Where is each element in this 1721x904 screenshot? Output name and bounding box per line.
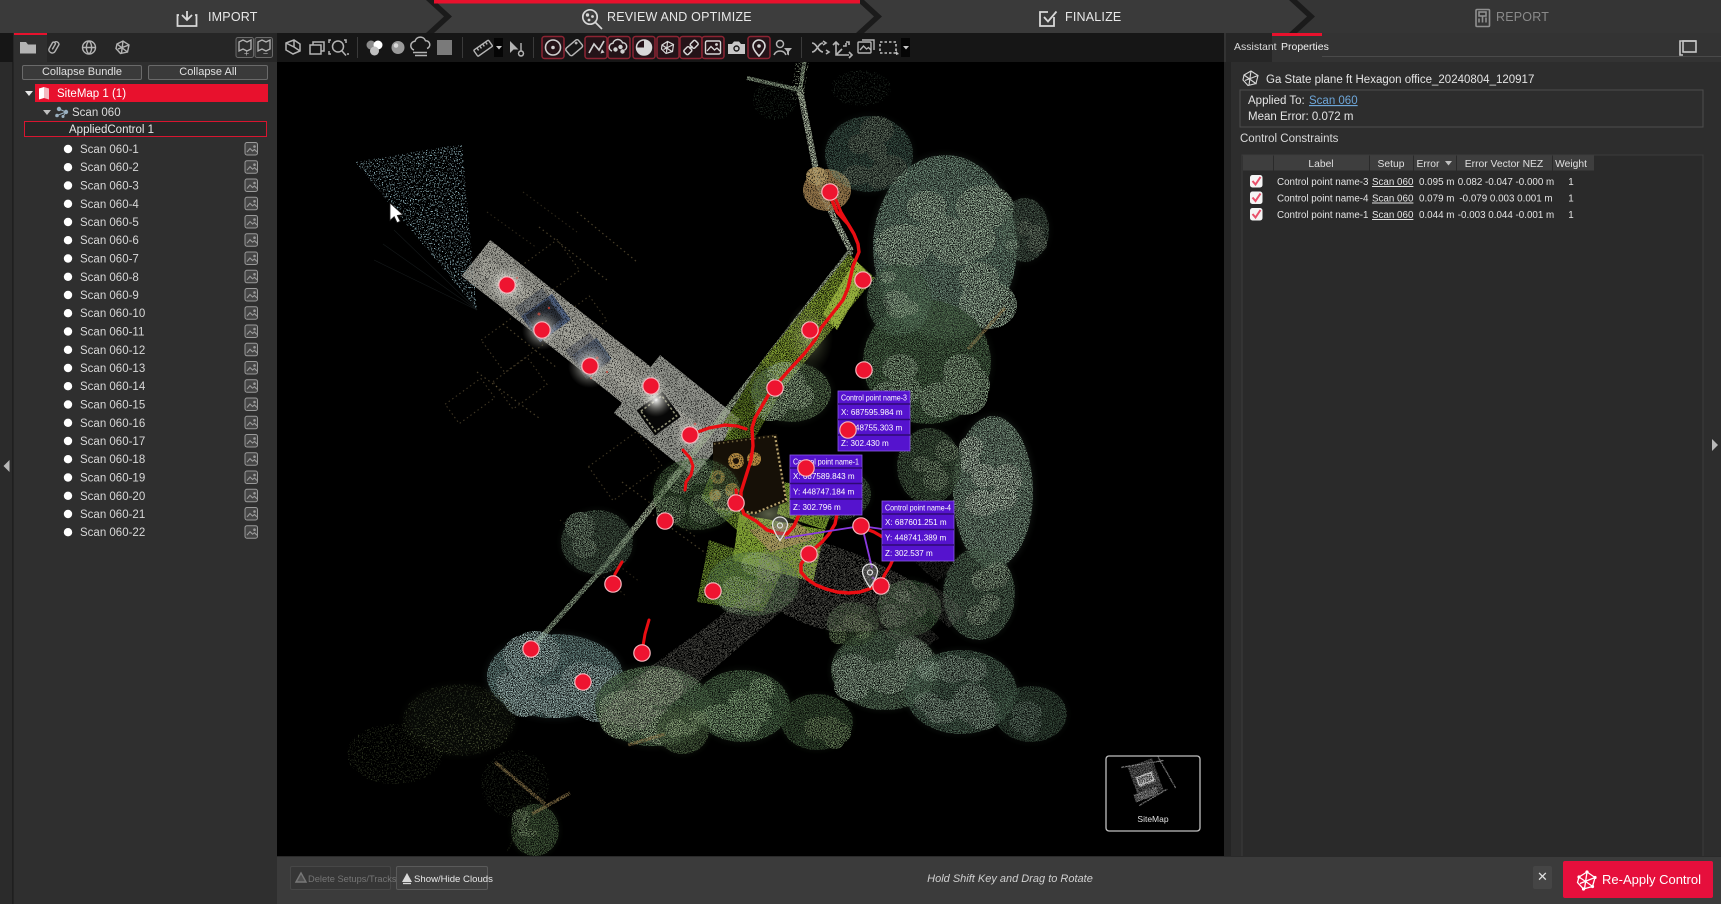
svg-text:Error: Error — [1417, 159, 1440, 170]
svg-text:Scan 060-8: Scan 060-8 — [80, 272, 139, 284]
svg-text:Scan 060: Scan 060 — [1372, 194, 1414, 205]
svg-text:Scan 060-15: Scan 060-15 — [80, 400, 145, 412]
svg-text:Scan 060-19: Scan 060-19 — [80, 473, 145, 485]
svg-text:REVIEW AND OPTIMIZE: REVIEW AND OPTIMIZE — [607, 10, 752, 24]
svg-text:Z: 302.537 m: Z: 302.537 m — [885, 549, 933, 558]
svg-text:Control point name-3: Control point name-3 — [1277, 177, 1369, 188]
svg-text:X: 687601.251 m: X: 687601.251 m — [885, 518, 947, 527]
svg-text:Z: 302.430 m: Z: 302.430 m — [841, 439, 889, 448]
svg-text:Scan 060-21: Scan 060-21 — [80, 509, 145, 521]
svg-text:Scan 060-17: Scan 060-17 — [80, 436, 145, 448]
svg-text:Scan 060: Scan 060 — [1372, 210, 1414, 221]
svg-text:Control point name-3: Control point name-3 — [841, 394, 907, 403]
svg-text:X: 687595.984 m: X: 687595.984 m — [841, 408, 903, 417]
svg-text:Scan 060-5: Scan 060-5 — [80, 217, 139, 229]
svg-text:Setup: Setup — [1378, 159, 1405, 170]
svg-text:Applied To:: Applied To: — [1248, 95, 1305, 107]
svg-text:Scan 060-13: Scan 060-13 — [80, 363, 145, 375]
svg-text:Scan 060-10: Scan 060-10 — [80, 308, 145, 320]
svg-text:Y: 448747.184 m: Y: 448747.184 m — [793, 488, 854, 497]
svg-text:Scan 060-7: Scan 060-7 — [80, 254, 139, 266]
svg-text:REPORT: REPORT — [1496, 10, 1549, 24]
svg-text:Scan 060-1: Scan 060-1 — [80, 144, 139, 156]
svg-text:-0.079 0.003 0.001 m: -0.079 0.003 0.001 m — [1459, 194, 1552, 205]
svg-text:1: 1 — [1568, 177, 1573, 188]
svg-text:Control Constraints: Control Constraints — [1240, 133, 1339, 145]
svg-text:SiteMap: SiteMap — [1137, 814, 1168, 824]
svg-text:0.044 m: 0.044 m — [1419, 210, 1454, 221]
svg-text:Scan 060-4: Scan 060-4 — [80, 199, 139, 211]
svg-text:1: 1 — [1568, 210, 1573, 221]
svg-text:Ga State plane ft Hexagon offi: Ga State plane ft Hexagon office_2024080… — [1266, 74, 1534, 86]
svg-text:Scan 060-22: Scan 060-22 — [80, 527, 145, 539]
svg-text:FINALIZE: FINALIZE — [1065, 10, 1121, 24]
svg-text:Scan 060-16: Scan 060-16 — [80, 418, 145, 430]
svg-text:Scan 060-3: Scan 060-3 — [80, 181, 139, 193]
svg-text:Z: 302.796 m: Z: 302.796 m — [793, 503, 841, 512]
svg-text:Scan 060: Scan 060 — [1372, 177, 1414, 188]
svg-text:Scan 060: Scan 060 — [1309, 95, 1358, 107]
svg-text:0.082 -0.047 -0.000 m: 0.082 -0.047 -0.000 m — [1458, 177, 1554, 188]
svg-text:Scan 060-12: Scan 060-12 — [80, 345, 145, 357]
svg-text:1: 1 — [1568, 194, 1573, 205]
svg-text:Mean Error: 0.072 m: Mean Error: 0.072 m — [1248, 111, 1353, 123]
svg-text:Scan 060-18: Scan 060-18 — [80, 454, 145, 466]
svg-text:Scan 060-14: Scan 060-14 — [80, 381, 146, 393]
svg-text:Scan 060-9: Scan 060-9 — [80, 290, 139, 302]
svg-text:0.079 m: 0.079 m — [1419, 194, 1454, 205]
svg-text:Error Vector NEZ: Error Vector NEZ — [1465, 159, 1543, 170]
svg-text:Scan 060-11: Scan 060-11 — [80, 327, 144, 339]
svg-text:-0.003 0.044 -0.001 m: -0.003 0.044 -0.001 m — [1458, 210, 1554, 221]
svg-text:Scan 060-2: Scan 060-2 — [80, 162, 139, 174]
svg-text:Label: Label — [1308, 159, 1333, 170]
svg-text:Y: 448741.389 m: Y: 448741.389 m — [885, 534, 946, 543]
svg-text:Control point name-1: Control point name-1 — [1277, 210, 1369, 221]
svg-text:0.095 m: 0.095 m — [1419, 177, 1454, 188]
svg-text:Scan 060-20: Scan 060-20 — [80, 491, 145, 503]
svg-text:Weight: Weight — [1555, 159, 1587, 170]
svg-text:Control point name-4: Control point name-4 — [1277, 194, 1369, 205]
svg-text:Control point name-4: Control point name-4 — [885, 504, 951, 513]
svg-text:Scan 060-6: Scan 060-6 — [80, 235, 139, 247]
